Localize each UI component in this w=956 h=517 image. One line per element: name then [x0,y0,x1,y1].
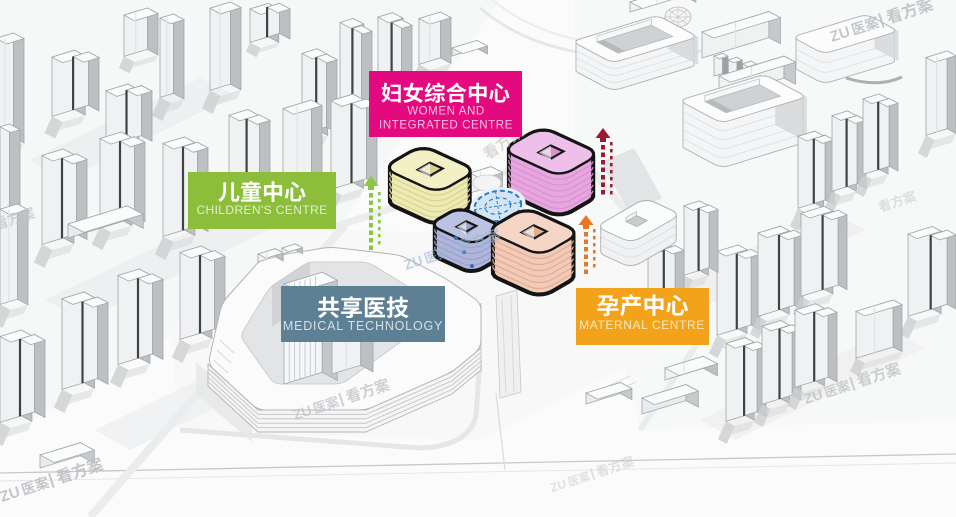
svg-text:INTEGRATED CENTRE: INTEGRATED CENTRE [379,120,513,132]
svg-text:CHILDREN'S CENTRE: CHILDREN'S CENTRE [196,203,327,217]
svg-text:WOMEN AND: WOMEN AND [407,106,485,118]
svg-text:MATERNAL CENTRE: MATERNAL CENTRE [579,318,705,332]
svg-text:MEDICAL TECHNOLOGY: MEDICAL TECHNOLOGY [283,319,443,333]
